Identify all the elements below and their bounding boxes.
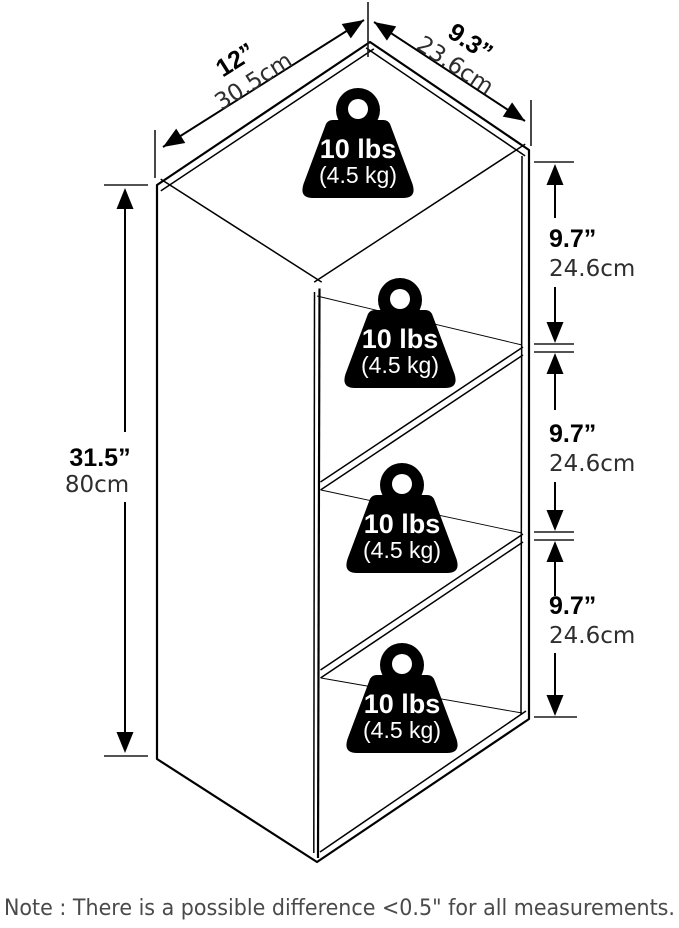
height-arrow-down — [117, 732, 134, 753]
depth-arrow-left — [369, 15, 396, 41]
section-2-inch-label: 9.7” — [549, 420, 596, 448]
right-edge-inner — [521, 156, 522, 714]
dimension-height: 31.5” 80cm — [65, 185, 148, 756]
section-1-cm-label: 24.6cm — [549, 256, 635, 282]
front-corner-edge — [318, 289, 320, 859]
section-3-arrow-down — [547, 695, 564, 716]
width-arrow-right — [342, 13, 369, 39]
shelf-dimension-diagram: 10 lbs (4.5 kg) 10 lbs (4.5 kg) 10 lbs (… — [0, 0, 679, 928]
weight-capacity-icon-shelf-3: 10 lbs (4.5 kg) — [346, 643, 457, 753]
section-1-inch-label: 9.7” — [549, 225, 596, 253]
dimension-section-2: 9.7” 24.6cm — [534, 352, 635, 532]
weight-capacity-icon-shelf-2: 10 lbs (4.5 kg) — [346, 463, 457, 573]
depth-arrow-right — [503, 102, 530, 128]
section-2-cm-label: 24.6cm — [549, 451, 635, 477]
section-3-inch-label: 9.7” — [549, 592, 596, 620]
section-3-arrow-up — [547, 541, 564, 562]
dimension-section-3: 9.7” 24.6cm — [534, 540, 635, 717]
height-inch-label: 31.5” — [69, 444, 130, 472]
height-cm-label: 80cm — [65, 472, 129, 498]
weight-kg-label: (4.5 kg) — [363, 537, 441, 563]
weight-capacity-icon-top: 10 lbs (4.5 kg) — [302, 88, 413, 198]
weight-lbs-label: 10 lbs — [362, 324, 439, 354]
depth-dimension-label: 9.3” 23.6cm — [412, 7, 514, 100]
width-arrow-left — [158, 129, 185, 155]
section-1-arrow-down — [547, 322, 564, 343]
section-2-arrow-up — [547, 353, 564, 374]
front-corner-edge-inner — [314, 292, 315, 853]
top-panel-inner-front-left-edge — [161, 179, 322, 282]
section-1-arrow-up — [547, 164, 564, 185]
section-2-arrow-down — [547, 510, 564, 531]
product-dimension-diagram-page: 10 lbs (4.5 kg) 10 lbs (4.5 kg) 10 lbs (… — [0, 0, 679, 928]
weight-capacity-icon-shelf-1: 10 lbs (4.5 kg) — [344, 278, 455, 388]
weight-lbs-label: 10 lbs — [364, 509, 441, 539]
weight-lbs-label: 10 lbs — [320, 134, 397, 164]
dimension-section-1: 9.7” 24.6cm — [534, 162, 635, 344]
section-3-cm-label: 24.6cm — [549, 623, 635, 649]
weight-lbs-label: 10 lbs — [364, 689, 441, 719]
weight-kg-label: (4.5 kg) — [361, 352, 439, 378]
dimension-depth: 9.3” 23.6cm — [369, 7, 531, 146]
height-arrow-up — [117, 188, 134, 209]
weight-kg-label: (4.5 kg) — [363, 717, 441, 743]
weight-kg-label: (4.5 kg) — [319, 162, 397, 188]
measurement-tolerance-note: Note : There is a possible difference <0… — [4, 896, 675, 921]
